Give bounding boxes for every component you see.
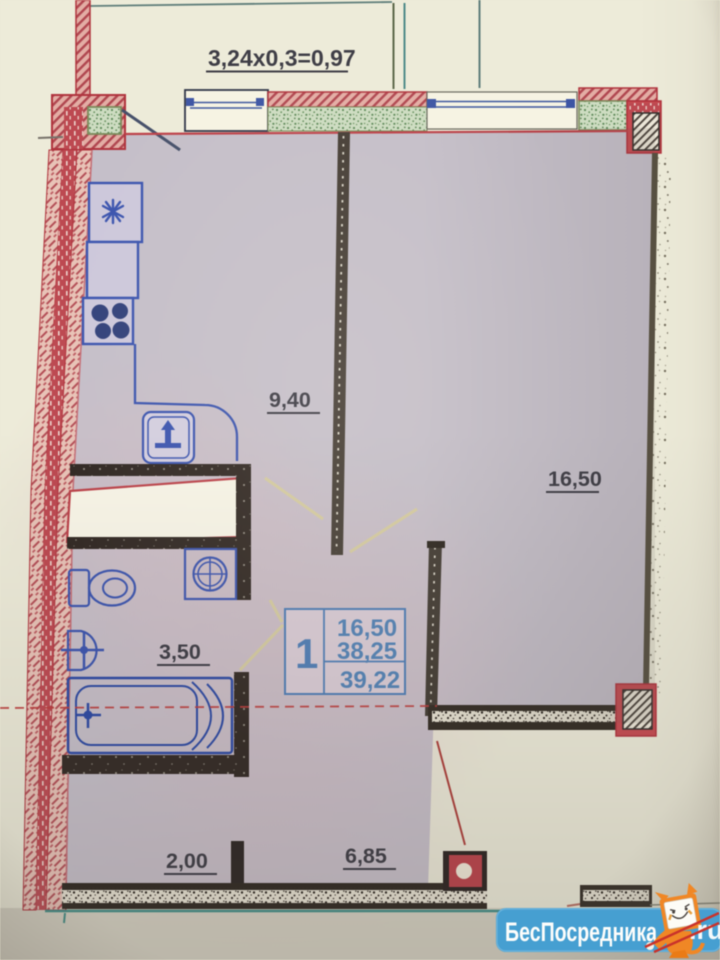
svg-text:БесПосредника: БесПосредника bbox=[505, 917, 658, 947]
